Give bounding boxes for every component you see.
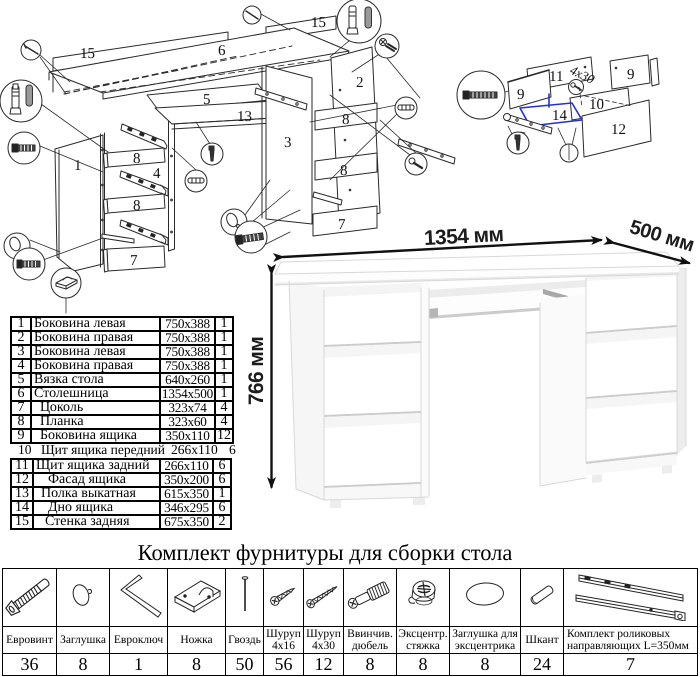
svg-text:9: 9 (517, 87, 525, 103)
svg-text:9: 9 (627, 67, 635, 83)
svg-text:8: 8 (340, 163, 348, 179)
svg-text:14: 14 (552, 108, 568, 124)
svg-text:7: 7 (338, 217, 346, 233)
svg-text:15: 15 (80, 46, 95, 62)
svg-text:15: 15 (311, 15, 326, 31)
svg-text:13: 13 (237, 109, 252, 125)
svg-text:8: 8 (133, 151, 141, 167)
svg-text:6: 6 (218, 43, 226, 59)
svg-text:11: 11 (549, 69, 563, 85)
svg-text:8: 8 (133, 198, 141, 214)
svg-text:4: 4 (153, 166, 161, 182)
svg-text:7: 7 (130, 253, 138, 269)
svg-text:1354 мм: 1354 мм (423, 223, 504, 250)
svg-text:12: 12 (611, 122, 626, 138)
svg-text:2: 2 (356, 75, 364, 91)
svg-text:3: 3 (284, 135, 292, 151)
svg-text:766 мм: 766 мм (245, 337, 268, 405)
